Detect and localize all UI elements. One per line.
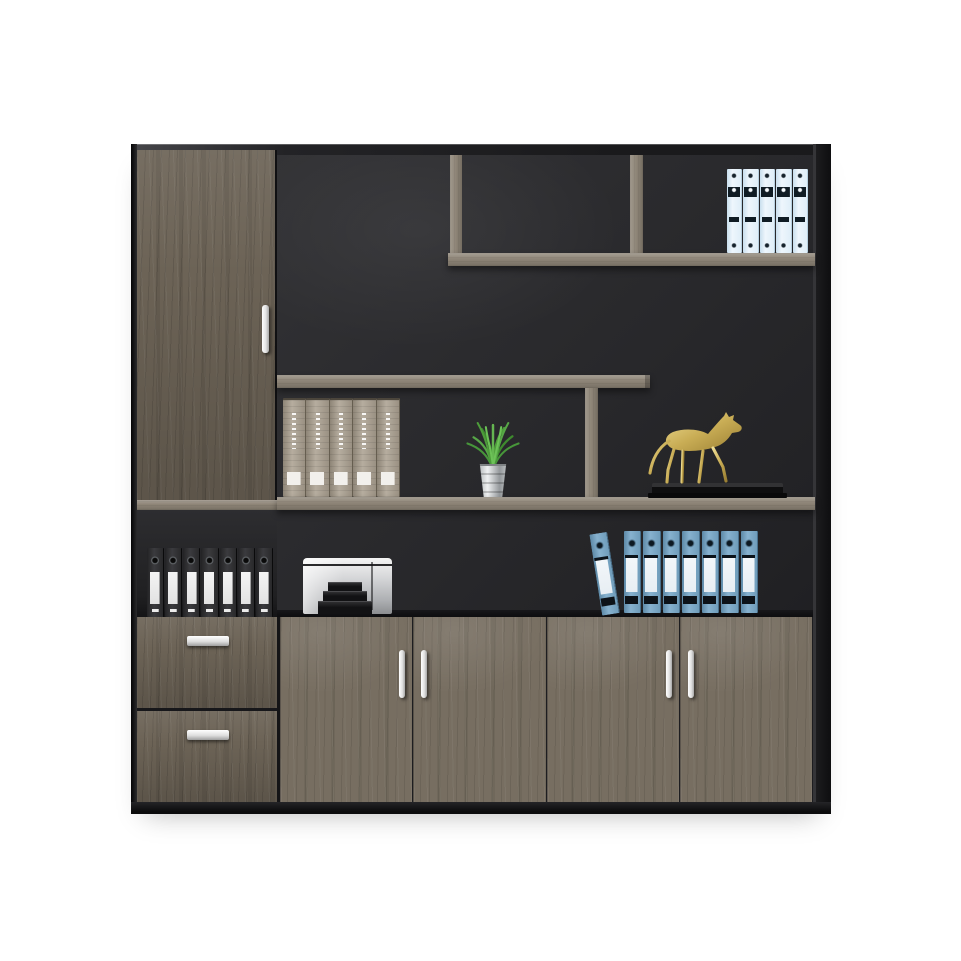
ring-binder-black <box>220 548 237 617</box>
door-handle <box>666 650 672 698</box>
book <box>283 398 306 497</box>
ring-binder-blue <box>624 531 642 613</box>
ring-binder-blue <box>741 531 759 613</box>
book <box>306 398 329 497</box>
ring-binder-black <box>147 548 164 617</box>
book-row <box>283 398 400 497</box>
ring-binder-blue <box>702 531 720 613</box>
cabinet-door <box>413 617 546 802</box>
ring-binder-blue <box>721 531 739 613</box>
cabinet-right-side-panel <box>813 144 831 814</box>
middle-shelf-board <box>277 497 815 510</box>
door-handle <box>399 650 405 698</box>
drawer-stack <box>137 617 277 802</box>
ring-binder-light <box>776 169 791 253</box>
cabinet-door <box>680 617 813 802</box>
fixed-shelf-edge <box>137 500 277 510</box>
black-binder-row <box>147 546 273 617</box>
light-blue-binder-row <box>727 169 808 253</box>
drawer <box>137 617 277 708</box>
printer-tray <box>318 601 372 614</box>
ring-binder-blue <box>663 531 681 613</box>
ring-binder-light <box>743 169 758 253</box>
ring-binder-light <box>793 169 808 253</box>
cabinet <box>131 144 831 814</box>
ring-binder-black <box>183 548 200 617</box>
ring-binder-black <box>201 548 218 617</box>
ring-binder-black <box>165 548 182 617</box>
ring-binder-blue <box>682 531 700 613</box>
door-handle <box>688 650 694 698</box>
drawer-handle <box>187 730 229 740</box>
shelf-post <box>450 155 462 253</box>
middle-shelf-divider <box>585 388 598 497</box>
book <box>330 398 353 497</box>
upper-shelf-board <box>448 253 815 266</box>
tall-cabinet-door <box>137 150 277 500</box>
blue-binder-row <box>602 528 758 613</box>
printer-paper-trays <box>319 574 371 614</box>
ring-binder-black <box>238 548 255 617</box>
door-handle <box>421 650 427 698</box>
drawer-handle <box>187 636 229 646</box>
cabinet-door <box>280 617 413 802</box>
grass-plant <box>465 421 521 468</box>
printer <box>303 558 392 614</box>
tall-door-handle <box>262 305 269 353</box>
printer-tray <box>323 591 367 601</box>
ring-binder-black <box>256 548 273 617</box>
ring-binder-light <box>727 169 742 253</box>
ring-binder-light <box>760 169 775 253</box>
printer-tray <box>328 582 362 591</box>
shelf-divider <box>630 155 643 253</box>
ring-binder-blue <box>643 531 661 613</box>
drawer <box>137 708 277 802</box>
cabinet-plinth <box>131 802 831 814</box>
product-photo <box>0 0 961 961</box>
bottom-door-row <box>277 617 813 802</box>
horse-statue <box>637 410 753 488</box>
cabinet-door <box>547 617 680 802</box>
book <box>353 398 376 497</box>
book <box>377 398 400 497</box>
middle-shelf-top-rail <box>277 375 650 388</box>
